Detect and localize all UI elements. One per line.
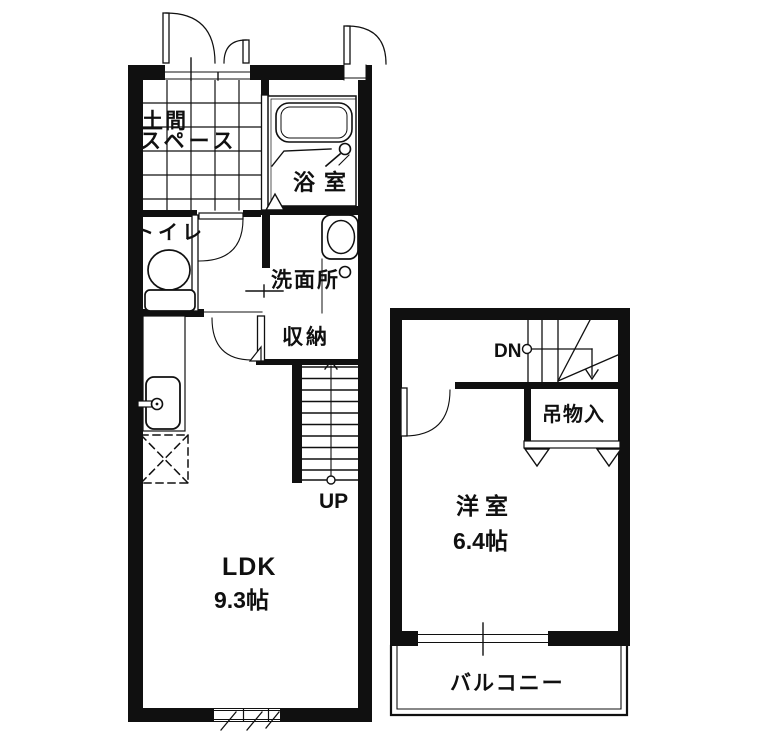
closet-label: 吊物入 [542,402,605,426]
ldk-door-mark [250,347,261,361]
floor-plan-drawing: 土間 スペース 浴室 トイレ 洗面所 収納 UP LDK 9.3帖 [0,0,764,751]
balcony-label: バルコニー [450,672,565,695]
bedroom-door-swing [404,390,450,436]
kitchen-counter [138,316,185,431]
toilet-fixture [145,250,195,311]
bedroom-door-leaf [401,388,407,436]
ldk-door-swing [212,318,252,360]
closet-door-mark-left [525,449,549,466]
ldk-label: LDK [222,553,276,581]
stairs-up-label: UP [319,490,348,513]
bedroom-label: 洋室 [456,493,514,519]
stairs-down-label: DN [494,341,521,362]
doma-label-line2: スペース [140,130,237,153]
first-floor-unit: 土間 スペース 浴室 トイレ 洗面所 収納 UP LDK 9.3帖 [128,13,386,730]
hall-door-leaf [199,213,243,219]
second-floor-unit: DN 吊物入 洋室 6.4帖 バルコニー [390,308,630,715]
entrance-door [163,13,250,80]
washroom-label: 洗面所 [271,269,340,292]
storage-label: 収納 [282,325,330,349]
ldk-window [214,709,280,730]
refrigerator-dashed-box [141,435,188,483]
bedroom-size-label: 6.4帖 [453,528,508,554]
service-door [344,26,386,80]
closet-door-mark-right [597,449,621,466]
toilet-icon [148,250,190,290]
service-door-leaf [344,26,350,64]
service-door-swing [347,26,386,64]
bedroom-door [401,388,450,436]
entrance-door-leaf-child [243,40,249,63]
washer-tap-icon [340,267,351,278]
hall-doors [199,213,261,361]
stairs-down [523,320,628,382]
entrance-door-swing-main [166,13,215,63]
stairs-up [302,361,358,484]
toilet-label: トイレ [134,222,206,244]
floor-plan-canvas: 土間 スペース 浴室 トイレ 洗面所 収納 UP LDK 9.3帖 [0,0,764,751]
balcony-window [418,623,548,655]
entrance-door-leaf-main [163,13,169,63]
bathroom-label: 浴室 [293,170,355,195]
ldk-size-label: 9.3帖 [214,587,269,613]
